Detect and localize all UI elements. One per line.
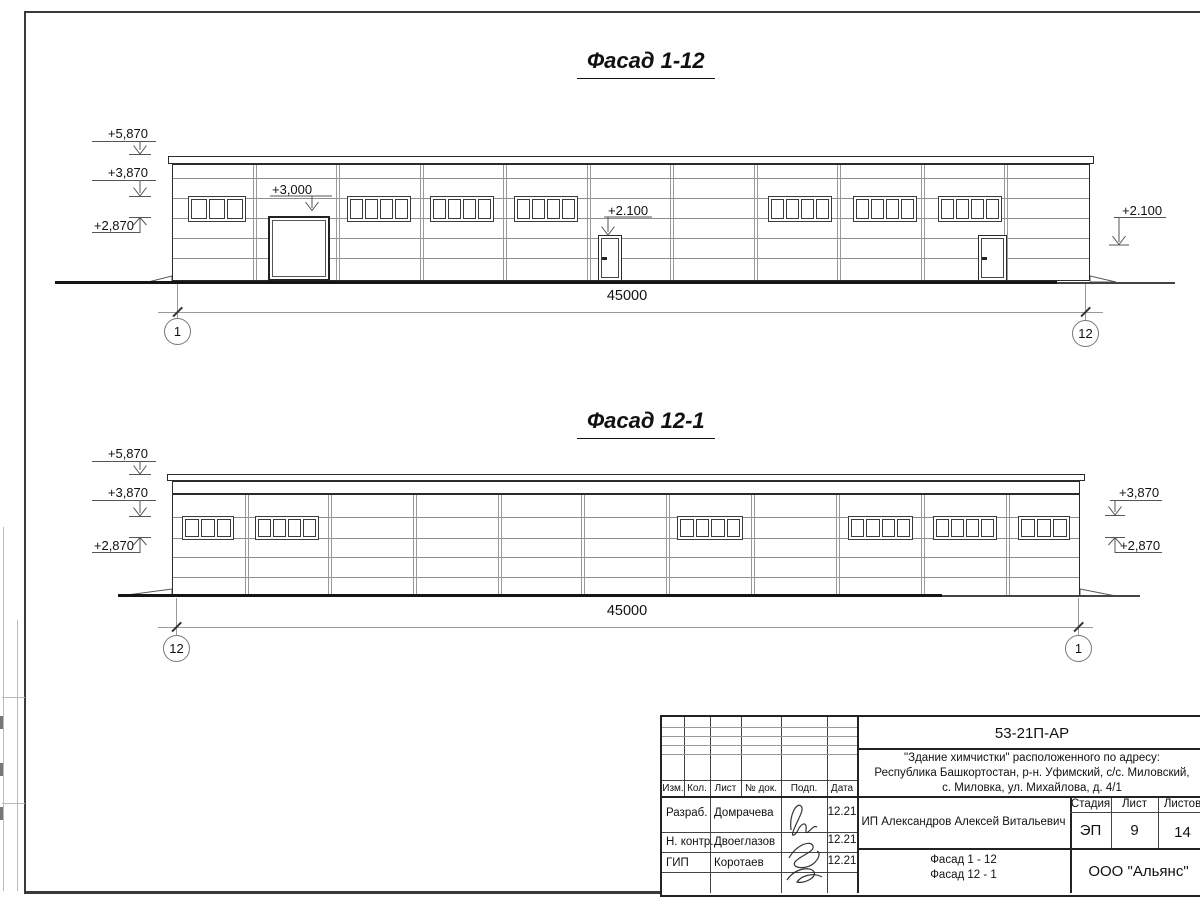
tb-company: ООО "Альянс": [1070, 863, 1200, 880]
tb-line: [662, 745, 857, 746]
tb-sheet-label: Лист: [1111, 798, 1158, 810]
window-pane: [871, 199, 884, 219]
svg-text:+3,000: +3,000: [272, 182, 312, 197]
axis-extension: [1078, 598, 1079, 635]
window-pane: [680, 519, 694, 537]
axis-number: 12: [1078, 326, 1092, 341]
tb-date: 12.21: [827, 834, 857, 846]
facade2-title: Фасад 12-1: [577, 408, 715, 439]
axis-number: 1: [1075, 641, 1082, 656]
dimension-value: 45000: [567, 288, 687, 304]
panel-joint: [420, 165, 424, 280]
tb-sheets-label: Листов: [1158, 798, 1200, 810]
tb-address-line1: "Здание химчистки" расположенного по адр…: [857, 752, 1200, 764]
axis-number: 1: [174, 324, 181, 339]
dimension-value: 45000: [567, 603, 687, 619]
window-pane: [433, 199, 446, 219]
window-pane: [851, 519, 864, 537]
tb-name: Коротаев: [714, 857, 764, 869]
margin-stamp-line: [17, 620, 18, 891]
panel-joint: [587, 165, 591, 280]
window-pane: [1021, 519, 1035, 537]
tb-date: 12.21: [827, 855, 857, 867]
panel-joint: [253, 165, 257, 280]
window-pane: [1037, 519, 1051, 537]
svg-text:+3,870: +3,870: [108, 165, 148, 180]
drawing-sheet: Фасад 1-12 +5,870 +3,870 +2,870 +3,000: [0, 0, 1200, 900]
window-pane: [365, 199, 378, 219]
door-handle: [602, 257, 607, 260]
wall-line: [173, 557, 1079, 558]
margin-stamp-line: [3, 527, 4, 891]
window-pane: [901, 199, 914, 219]
window-pane: [882, 519, 895, 537]
tb-line: [662, 872, 857, 873]
panel-joint: [666, 495, 670, 595]
tb-line: [662, 780, 857, 781]
svg-text:+2,870: +2,870: [94, 218, 134, 233]
tb-address-line3: с. Миловка, ул. Михайлова, д. 4/1: [857, 782, 1200, 794]
tb-col-doc: № док.: [741, 783, 781, 794]
title-block: Изм. Кол. Лист № док. Подп. Дата Разраб.…: [660, 715, 1200, 897]
gate-leaf: [272, 220, 326, 277]
svg-text:+3,870: +3,870: [1119, 485, 1159, 500]
window-pane: [771, 199, 784, 219]
elevation-mark: +2,870: [1104, 534, 1166, 558]
svg-text:+2.100: +2.100: [1122, 203, 1162, 218]
level-label-door: +2.100: [600, 202, 660, 238]
panel-joint: [837, 165, 841, 280]
frame-left: [24, 11, 26, 894]
window-pane: [209, 199, 225, 219]
window: [430, 196, 494, 222]
tb-line: [857, 748, 1200, 750]
window: [255, 516, 319, 540]
tb-drawing-name-line2: Фасад 12 - 1: [857, 869, 1070, 881]
tb-name: Домрачева: [714, 807, 774, 819]
elevation-mark: +3,870: [90, 483, 162, 521]
window: [677, 516, 743, 540]
window-pane: [866, 519, 879, 537]
tb-line: [662, 852, 857, 853]
window: [347, 196, 411, 222]
tb-address-line2: Республика Башкортостан, р-н. Уфимский, …: [857, 767, 1200, 779]
tb-role: Н. контр.: [666, 836, 713, 848]
svg-text:+5,870: +5,870: [108, 126, 148, 141]
elevation-mark: +5,870: [90, 444, 162, 480]
window: [514, 196, 578, 222]
tb-line: [662, 754, 857, 755]
panel-joint: [245, 495, 249, 595]
window-pane: [727, 519, 741, 537]
panel-joint: [328, 495, 332, 595]
svg-text:+2,870: +2,870: [1120, 538, 1160, 553]
frame-top: [25, 11, 1200, 13]
tb-col-list: Лист: [710, 783, 741, 794]
facade1-title: Фасад 1-12: [577, 48, 715, 79]
window-pane: [448, 199, 461, 219]
svg-text:+3,870: +3,870: [108, 485, 148, 500]
window-pane: [191, 199, 207, 219]
window-pane: [547, 199, 560, 219]
tb-line: [662, 727, 857, 728]
window: [768, 196, 832, 222]
window: [853, 196, 917, 222]
tb-col-data: Дата: [827, 783, 857, 794]
tb-drawing-name-line1: Фасад 1 - 12: [857, 854, 1070, 866]
window-pane: [816, 199, 829, 219]
door-handle: [982, 257, 987, 260]
window-pane: [288, 519, 301, 537]
panel-joint: [751, 495, 755, 595]
window-pane: [273, 519, 286, 537]
dimension-line: [158, 312, 1103, 313]
tb-stage-label: Стадия: [1070, 798, 1111, 810]
axis-bubble: 1: [164, 318, 191, 345]
panel-joint: [581, 495, 585, 595]
window: [933, 516, 997, 540]
elevation-mark: +3,870: [90, 163, 162, 201]
window-pane: [786, 199, 799, 219]
window-pane: [897, 519, 910, 537]
tb-col-kol: Кол.: [684, 783, 710, 794]
tb-line: [857, 717, 859, 893]
window-pane: [936, 519, 949, 537]
window-pane: [258, 519, 271, 537]
tb-date: 12.21: [827, 806, 857, 818]
window-pane: [395, 199, 408, 219]
facade2-wall: [172, 494, 1080, 596]
elevation-mark: +2,870: [90, 534, 162, 558]
elevation-mark: +5,870: [90, 124, 162, 160]
panel-joint: [498, 495, 502, 595]
window: [1018, 516, 1070, 540]
margin-stamp-line: [2, 803, 25, 804]
window-pane: [517, 199, 530, 219]
axis-bubble: 12: [163, 635, 190, 662]
window-pane: [956, 199, 969, 219]
tb-line: [857, 848, 1200, 850]
panel-joint: [503, 165, 507, 280]
window: [938, 196, 1002, 222]
tb-role: ГИП: [666, 857, 689, 869]
window-pane: [217, 519, 231, 537]
tb-role: Разраб.: [666, 807, 707, 819]
window-pane: [981, 519, 994, 537]
window-pane: [801, 199, 814, 219]
window-pane: [303, 519, 316, 537]
svg-text:+2,870: +2,870: [94, 538, 134, 553]
window-pane: [463, 199, 476, 219]
ground-line: [55, 281, 1057, 284]
door: [978, 235, 1007, 281]
axis-number: 12: [169, 641, 183, 656]
window-pane: [966, 519, 979, 537]
panel-joint: [670, 165, 674, 280]
window-pane: [986, 199, 999, 219]
window-pane: [971, 199, 984, 219]
window-pane: [886, 199, 899, 219]
door: [598, 235, 622, 281]
tb-client: ИП Александров Алексей Витальевич: [857, 816, 1070, 828]
window-pane: [201, 519, 215, 537]
elevation-mark: +2.100: [1108, 200, 1170, 252]
panel-joint: [921, 495, 925, 595]
window-pane: [696, 519, 710, 537]
window-pane: [951, 519, 964, 537]
window-pane: [562, 199, 575, 219]
dimension-line: [158, 627, 1093, 628]
margin-stamp-line: [2, 697, 25, 698]
svg-text:+2.100: +2.100: [608, 203, 648, 218]
window-pane: [380, 199, 393, 219]
gate: [268, 216, 330, 281]
panel-joint: [1006, 495, 1010, 595]
axis-bubble: 1: [1065, 635, 1092, 662]
margin-stamp-text-stub: [0, 807, 3, 820]
panel-joint: [413, 495, 417, 595]
axis-extension: [176, 598, 177, 635]
level-label-gate: +3,000: [266, 178, 338, 218]
tb-line: [1070, 812, 1200, 813]
tb-sheets-value: 14: [1158, 824, 1200, 841]
facade1-parapet: [168, 156, 1094, 164]
tb-doc-number: 53-21П-АР: [857, 725, 1200, 742]
panel-joint: [836, 495, 840, 595]
window-pane: [478, 199, 491, 219]
window-pane: [856, 199, 869, 219]
window-pane: [1053, 519, 1067, 537]
margin-stamp-text-stub: [0, 716, 3, 729]
tb-col-izm: Изм.: [662, 783, 684, 794]
signature: [781, 796, 827, 893]
axis-bubble: 12: [1072, 320, 1099, 347]
window-pane: [532, 199, 545, 219]
tb-line: [662, 736, 857, 737]
window-pane: [185, 519, 199, 537]
margin-stamp-text-stub: [0, 763, 3, 776]
tb-stage-value: ЭП: [1070, 822, 1111, 839]
panel-joint: [921, 165, 925, 280]
window: [848, 516, 913, 540]
ground-line: [942, 595, 1140, 597]
panel-joint: [754, 165, 758, 280]
facade2-parapet-band: [172, 481, 1080, 494]
window-pane: [711, 519, 725, 537]
window-pane: [941, 199, 954, 219]
elevation-mark: +3,870: [1104, 483, 1166, 521]
tb-sheet-value: 9: [1111, 822, 1158, 839]
wall-line: [173, 577, 1079, 578]
window-pane: [227, 199, 243, 219]
tb-name: Двоеглазов: [714, 836, 775, 848]
tb-line: [662, 832, 857, 833]
tb-col-podp: Подп.: [781, 783, 827, 794]
window-pane: [350, 199, 363, 219]
elevation-mark: +2,870: [90, 214, 162, 238]
tb-line: [710, 717, 711, 893]
facade2-parapet-cap: [167, 474, 1085, 481]
window: [182, 516, 234, 540]
svg-text:+5,870: +5,870: [108, 446, 148, 461]
ground-line: [118, 594, 942, 597]
axis-extension: [1085, 284, 1086, 320]
window: [188, 196, 246, 222]
ground-line: [1057, 282, 1175, 284]
